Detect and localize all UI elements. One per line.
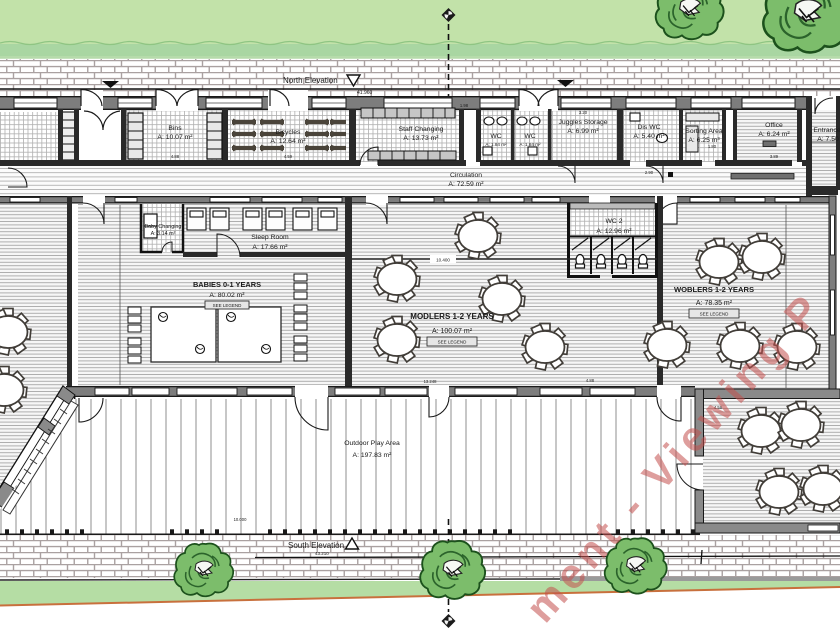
svg-text:A: 5.40 m²: A: 5.40 m² [633, 133, 665, 140]
svg-text:A: 80.02 m²: A: 80.02 m² [209, 292, 245, 299]
svg-text:MODLERS 1-2 YEARS: MODLERS 1-2 YEARS [410, 312, 494, 321]
svg-text:3.20: 3.20 [579, 110, 588, 115]
svg-text:Outdoor Play Area: Outdoor Play Area [344, 440, 400, 447]
svg-text:WC: WC [524, 133, 535, 140]
svg-text:A: 6.24 m²: A: 6.24 m² [758, 131, 790, 138]
svg-text:Circulation: Circulation [450, 172, 482, 179]
svg-text:SEE LEGEND: SEE LEGEND [438, 340, 468, 345]
svg-text:WOBLERS 1-2 YEARS: WOBLERS 1-2 YEARS [674, 285, 754, 294]
svg-text:A: 12.64 m²: A: 12.64 m² [270, 138, 306, 145]
svg-text:WC 2: WC 2 [606, 218, 623, 225]
svg-text:Sleep Room: Sleep Room [251, 234, 289, 241]
svg-text:Office: Office [765, 122, 783, 129]
svg-text:A: 78.35 m²: A: 78.35 m² [696, 300, 733, 307]
svg-text:A: 72.59 m²: A: 72.59 m² [448, 181, 484, 188]
svg-text:4.88: 4.88 [586, 378, 595, 383]
svg-text:SEE LEGEND: SEE LEGEND [700, 312, 730, 317]
svg-text:Baby Changing: Baby Changing [145, 224, 182, 230]
svg-text:Juggles Storage: Juggles Storage [558, 119, 607, 126]
svg-text:A: 1.84 m²: A: 1.84 m² [519, 142, 541, 147]
svg-text:SEE LEGEND: SEE LEGEND [213, 303, 243, 308]
svg-text:2.90: 2.90 [645, 170, 654, 175]
svg-text:A: 10.07 m²: A: 10.07 m² [157, 134, 193, 141]
svg-text:Bins: Bins [168, 125, 182, 132]
svg-text:A: 6.99 m²: A: 6.99 m² [567, 128, 599, 135]
svg-text:WC: WC [490, 133, 501, 140]
svg-text:A: 13.73 m²: A: 13.73 m² [403, 135, 439, 142]
svg-text:4.59: 4.59 [284, 154, 293, 159]
svg-text:A: 12.96 m²: A: 12.96 m² [596, 228, 632, 235]
svg-text:Entrance: Entrance [813, 127, 840, 134]
svg-text:A: 1.84 m²: A: 1.84 m² [485, 142, 507, 147]
svg-text:1.80: 1.80 [708, 144, 717, 149]
svg-text:43.210: 43.210 [315, 551, 329, 556]
svg-text:10.400: 10.400 [436, 258, 450, 263]
svg-text:Staff Changing: Staff Changing [399, 126, 444, 133]
svg-text:1.98: 1.98 [460, 103, 469, 108]
svg-text:A: 7.50: A: 7.50 [817, 136, 839, 143]
svg-text:4.88: 4.88 [171, 154, 180, 159]
svg-text:A: 197.83 m²: A: 197.83 m² [353, 452, 393, 459]
svg-text:North Elevation: North Elevation [283, 76, 338, 85]
svg-text:A: 17.66 m²: A: 17.66 m² [252, 244, 288, 251]
svg-text:A: 3.14 m²: A: 3.14 m² [151, 231, 176, 237]
svg-text:South Elevation: South Elevation [288, 541, 344, 550]
svg-text:BABIES 0-1 YEARS: BABIES 0-1 YEARS [193, 280, 261, 289]
svg-text:Dis WC: Dis WC [637, 124, 660, 131]
svg-text:A: 6.25 m³: A: 6.25 m³ [688, 137, 720, 144]
svg-text:3.89: 3.89 [770, 154, 779, 159]
svg-text:A: 100.07 m²: A: 100.07 m² [432, 328, 473, 335]
svg-text:Bicycles: Bicycles [276, 129, 302, 136]
svg-text:13.248: 13.248 [424, 379, 437, 384]
svg-text:41.960: 41.960 [357, 90, 373, 96]
svg-text:Sorting Area: Sorting Area [685, 128, 723, 135]
svg-text:10.000: 10.000 [234, 517, 247, 522]
